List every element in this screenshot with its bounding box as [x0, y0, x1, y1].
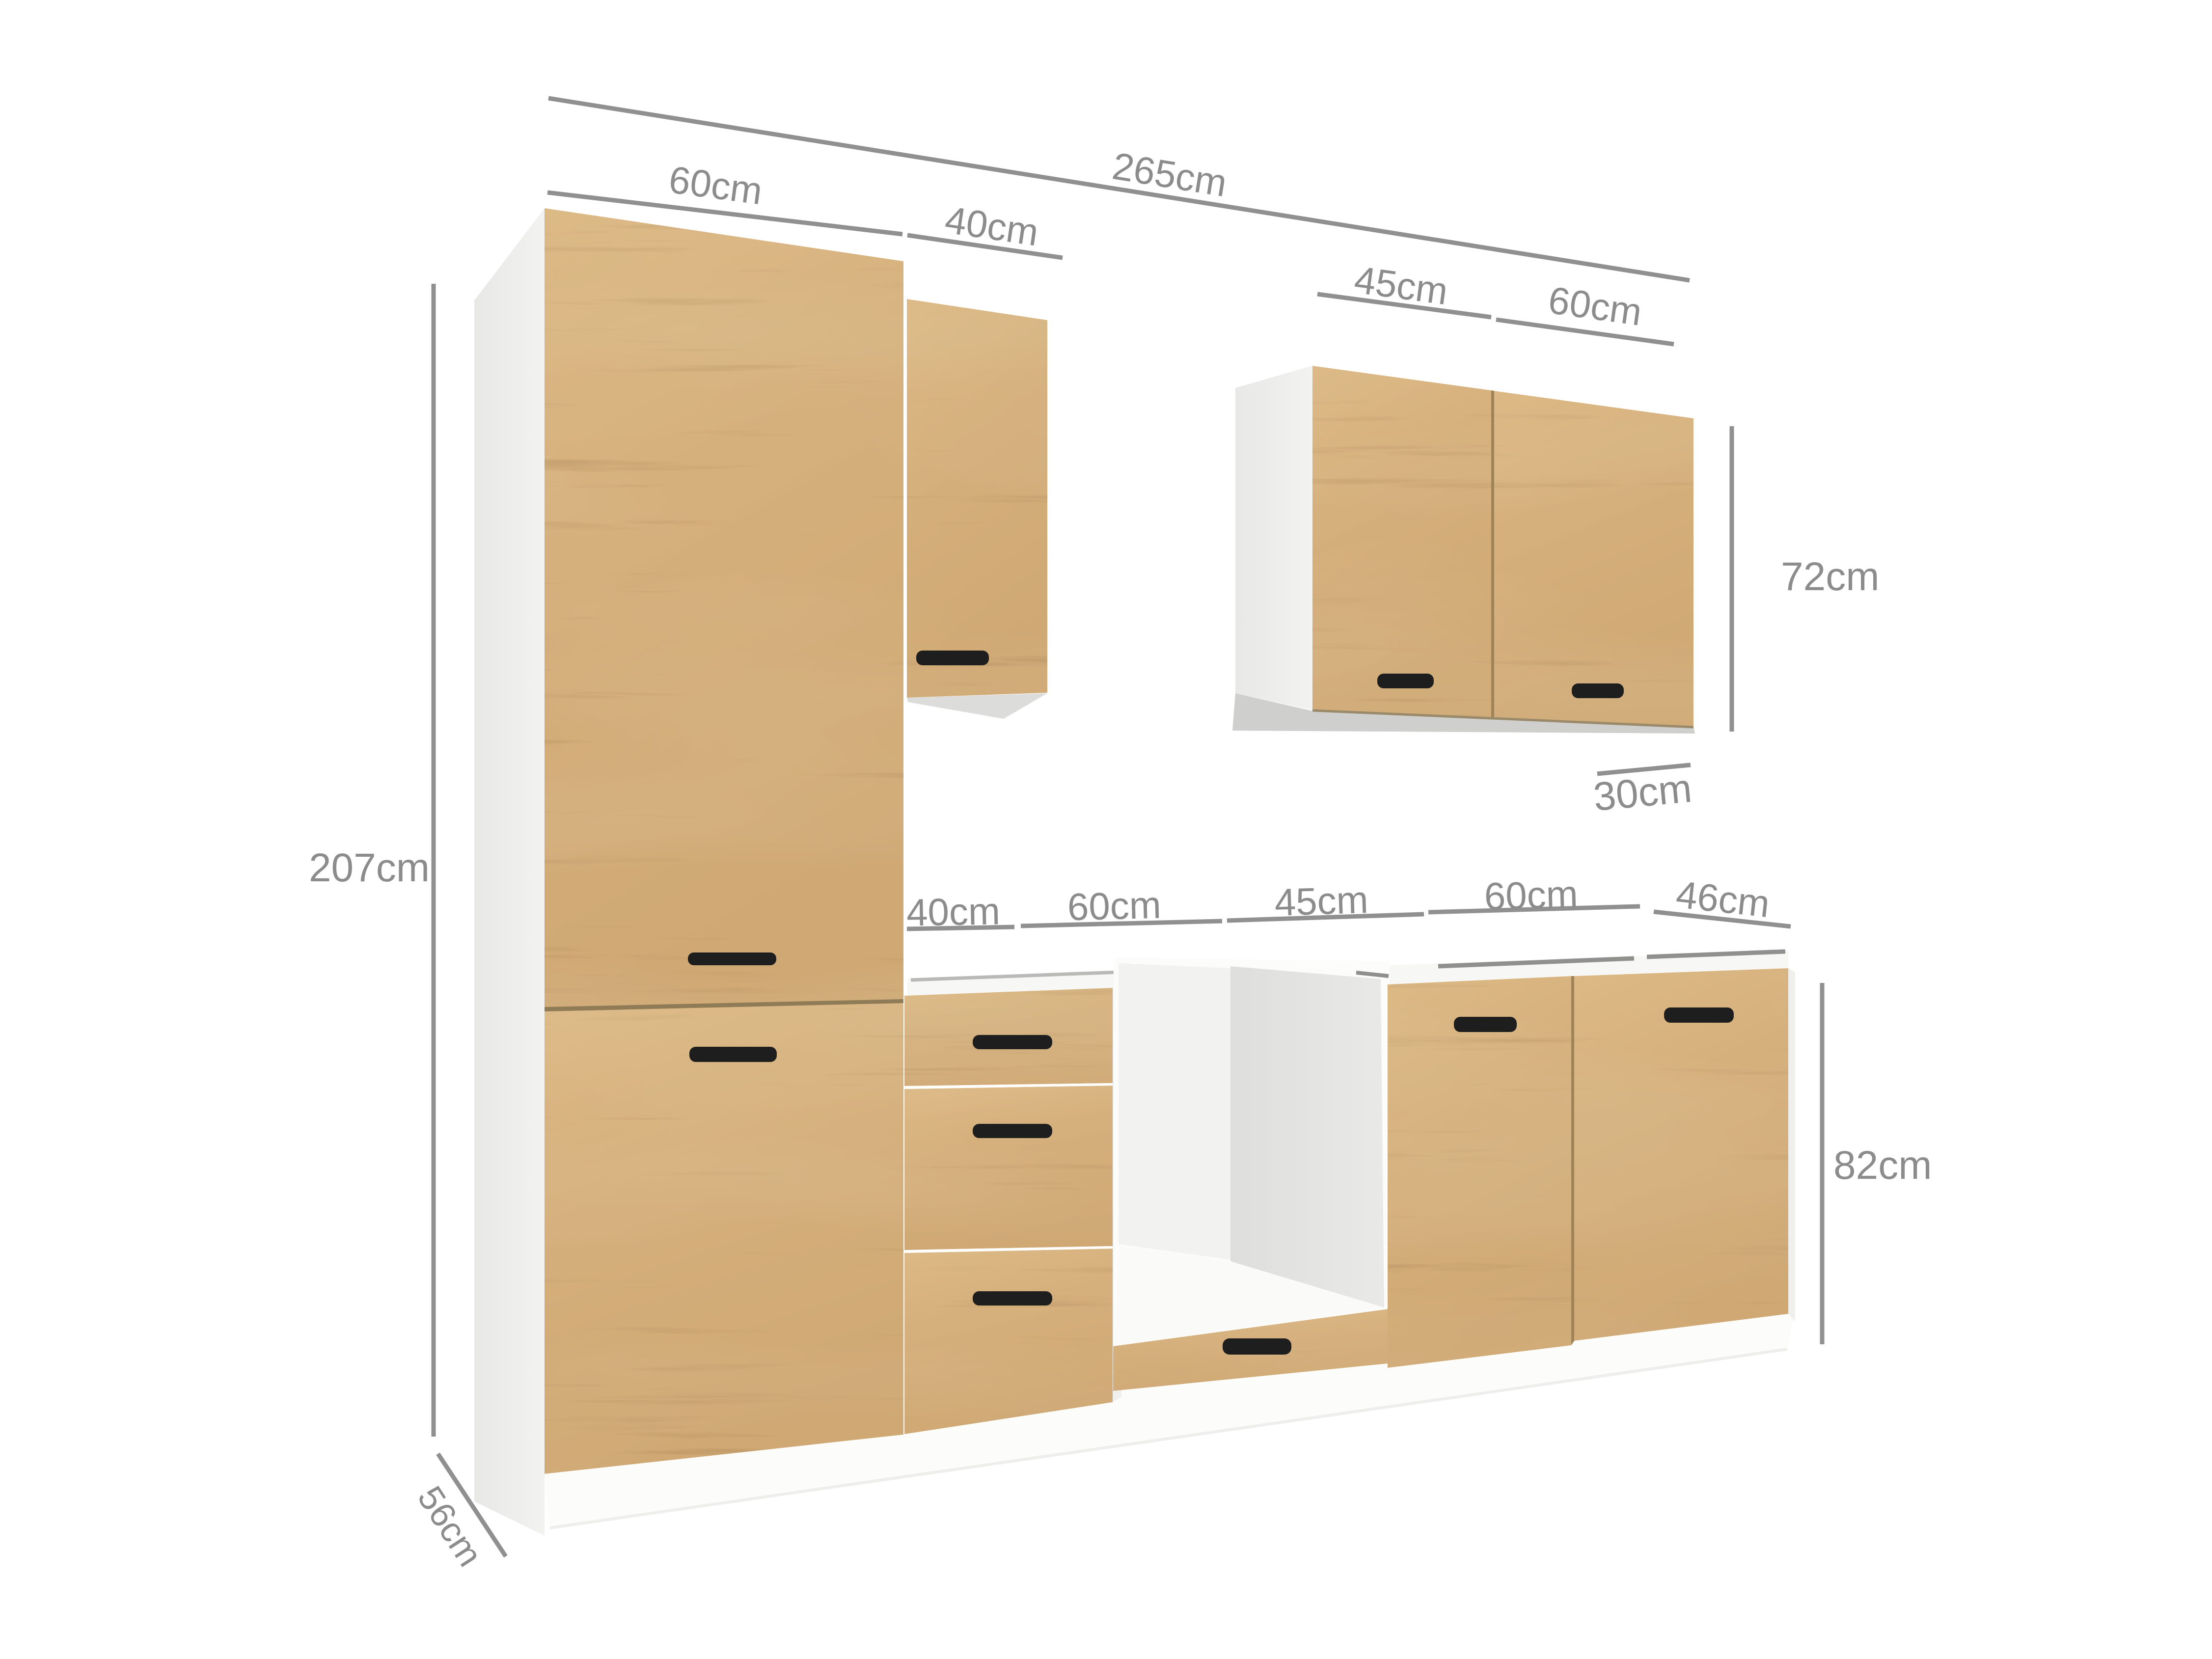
svg-text:72cm: 72cm [1781, 554, 1880, 599]
svg-text:60cm: 60cm [1067, 883, 1162, 929]
svg-text:60cm: 60cm [1484, 872, 1579, 918]
svg-text:207cm: 207cm [309, 845, 430, 890]
svg-text:30cm: 30cm [1591, 766, 1693, 819]
svg-text:82cm: 82cm [1833, 1143, 1932, 1188]
svg-text:40cm: 40cm [906, 889, 1000, 934]
svg-text:45cm: 45cm [1274, 878, 1368, 924]
